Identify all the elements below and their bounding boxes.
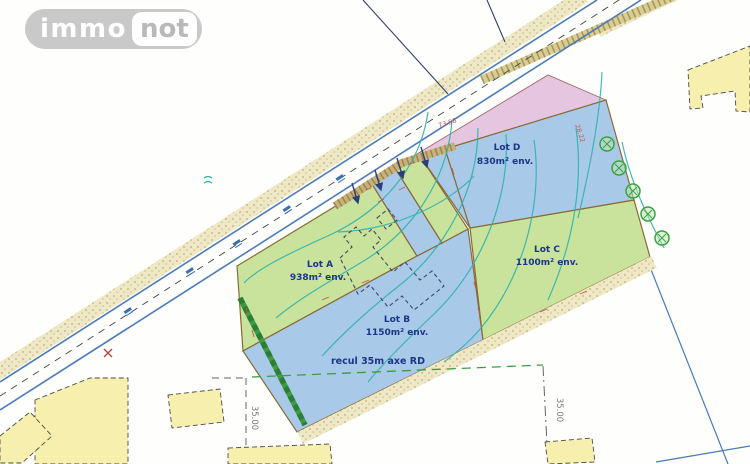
tree-icon	[626, 184, 640, 198]
dim-setback-right: 35.00	[554, 398, 564, 422]
tree-icon	[600, 137, 614, 151]
road-red-mark	[104, 349, 112, 357]
logo-not-text: not	[132, 12, 197, 46]
boundary-line-se-2	[656, 446, 750, 462]
lot-a-name: Lot A	[307, 260, 333, 270]
building-bottom-quad	[168, 389, 224, 428]
tree-icon	[655, 231, 669, 245]
lot-c-area: 1100m² env.	[516, 258, 579, 268]
plan-scan: immo not	[0, 0, 750, 464]
immonot-logo: immo not	[25, 9, 202, 49]
building-top-right	[688, 46, 750, 112]
building-bottom-left-main	[35, 378, 128, 464]
lot-b-area: 1150m² env.	[366, 328, 429, 338]
building-bottom-center	[545, 438, 595, 464]
road-cyan-mark	[204, 177, 212, 184]
lot-c-name: Lot C	[534, 245, 560, 255]
dim-setback-left: 35.00	[249, 406, 259, 430]
boundary-line-top-2	[487, 0, 505, 42]
lot-b-name: Lot B	[384, 315, 410, 325]
neighbour-boundaries-se	[648, 262, 750, 464]
building-bottom-strip	[228, 444, 332, 464]
land-division-map: Lot A 938m² env. Lot B 1150m² env. Lot C…	[0, 0, 750, 464]
lot-d-area: 830m² env.	[477, 157, 533, 167]
lot-a-area: 938m² env.	[290, 273, 346, 283]
dim-road-frontage: 73.56	[437, 117, 457, 130]
lot-d-name: Lot D	[494, 143, 521, 153]
tree-icon	[612, 161, 626, 175]
tree-icon	[641, 207, 655, 221]
boundary-line-top-1	[363, 0, 448, 94]
boundary-line-se-1	[648, 262, 728, 464]
setback-note: recul 35m axe RD	[331, 356, 425, 367]
logo-immo-text: immo	[40, 9, 127, 49]
lots	[237, 75, 650, 432]
